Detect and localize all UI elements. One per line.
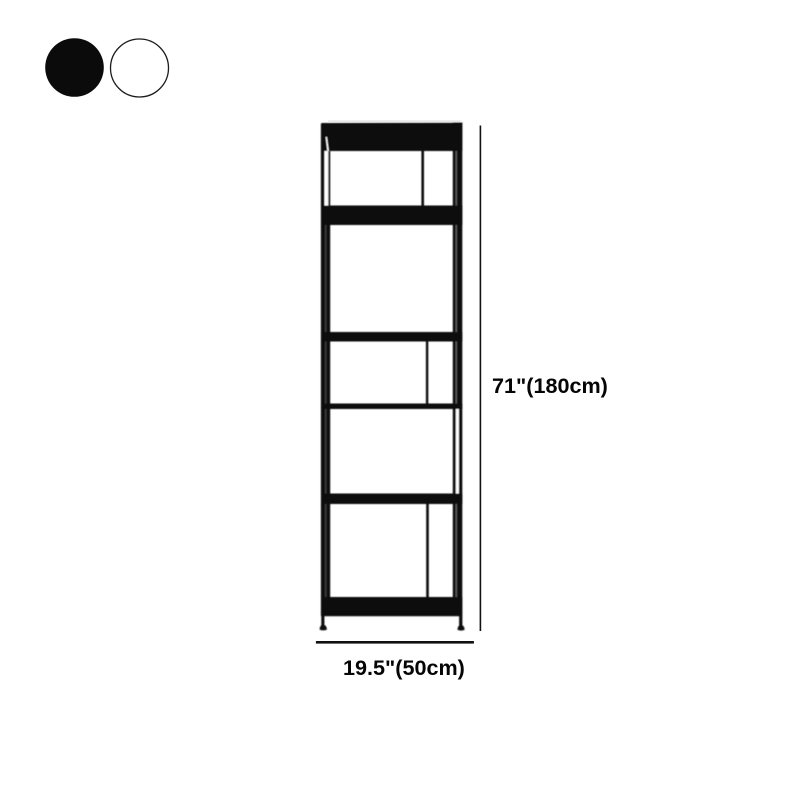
- svg-text:19.5"(50cm): 19.5"(50cm): [343, 655, 465, 680]
- svg-text:71"(180cm): 71"(180cm): [492, 373, 608, 398]
